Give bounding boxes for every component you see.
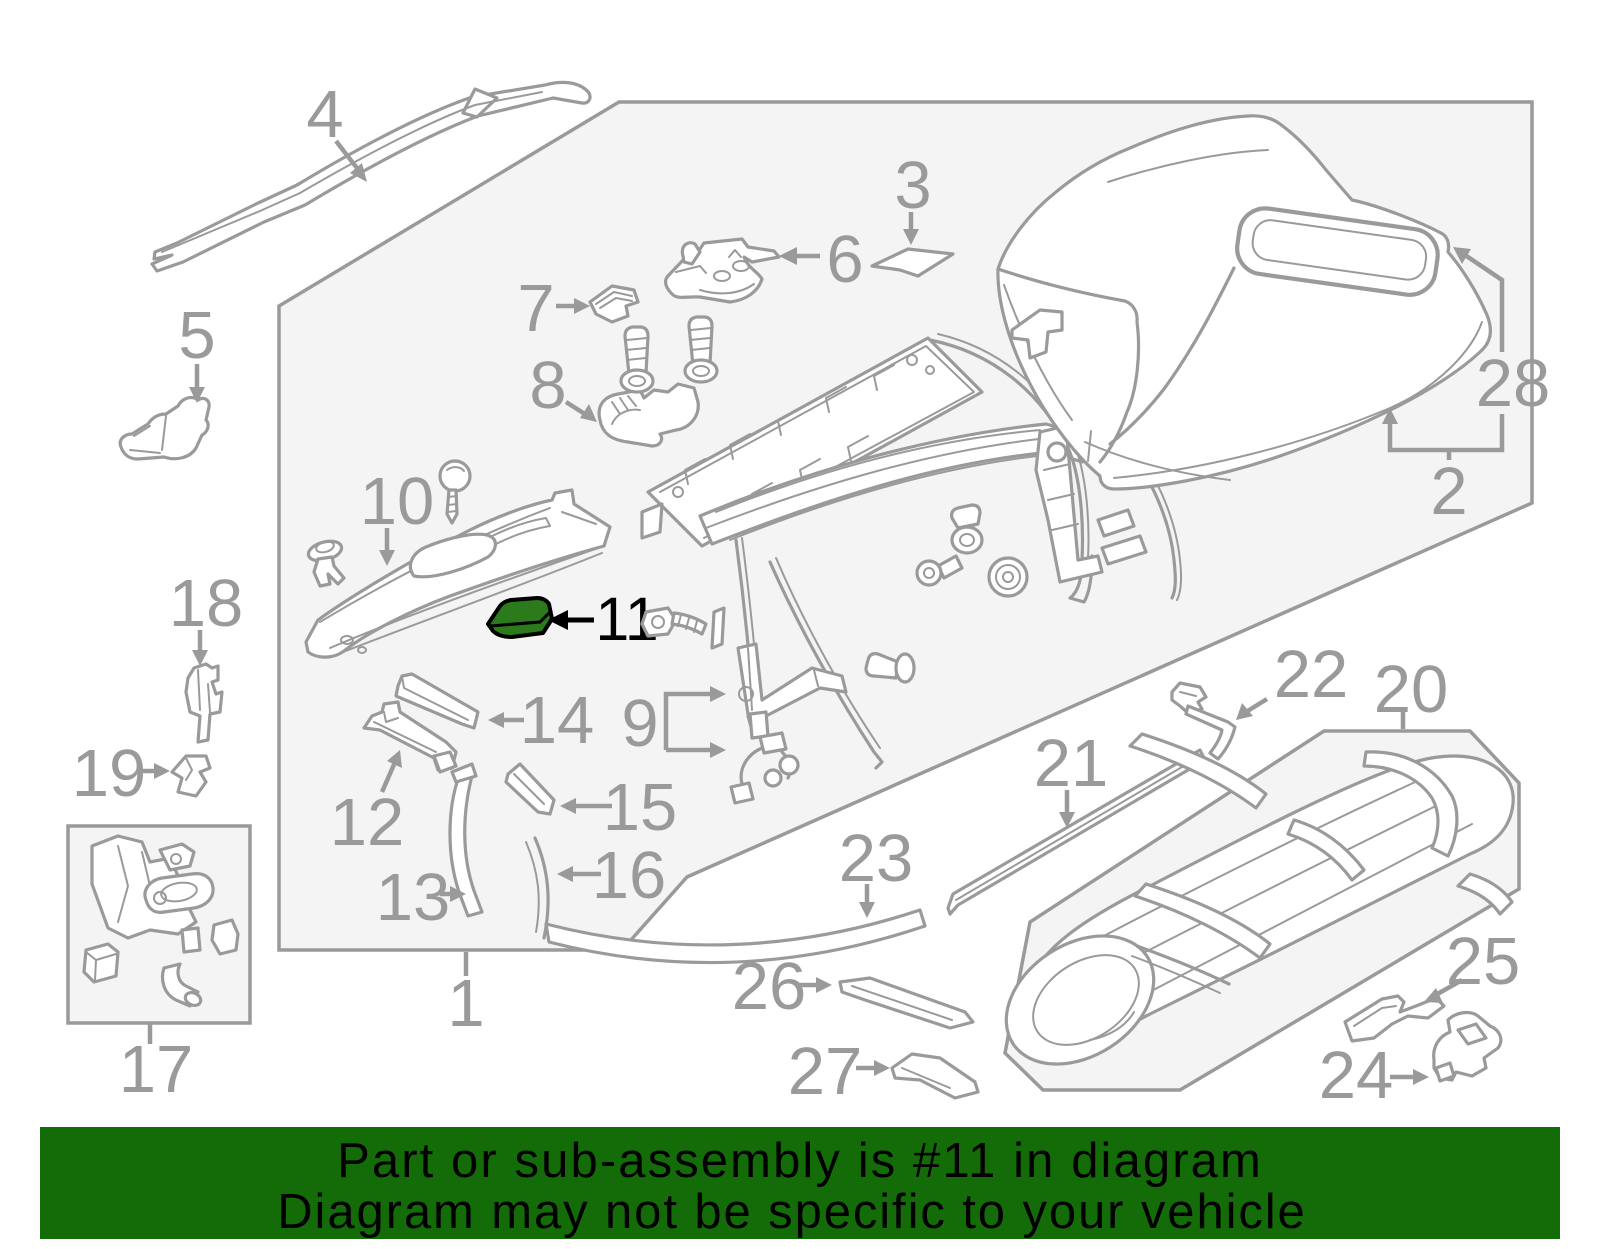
svg-text:13: 13 — [376, 860, 451, 935]
svg-text:20: 20 — [1374, 652, 1449, 727]
svg-text:21: 21 — [1034, 726, 1109, 801]
svg-text:18: 18 — [169, 566, 244, 641]
svg-text:19: 19 — [72, 736, 147, 811]
svg-text:23: 23 — [839, 821, 914, 896]
svg-text:2: 2 — [1430, 454, 1467, 529]
svg-text:14: 14 — [520, 683, 595, 758]
svg-text:16: 16 — [592, 838, 667, 913]
svg-text:Diagram may not be specific to: Diagram may not be specific to your vehi… — [277, 1185, 1306, 1239]
svg-text:26: 26 — [732, 949, 807, 1024]
svg-text:8: 8 — [529, 348, 566, 423]
svg-text:5: 5 — [178, 298, 215, 373]
svg-text:3: 3 — [894, 148, 931, 223]
svg-text:9: 9 — [621, 686, 658, 761]
svg-text:24: 24 — [1319, 1038, 1394, 1113]
svg-text:27: 27 — [788, 1034, 863, 1109]
svg-text:10: 10 — [360, 464, 435, 539]
svg-text:17: 17 — [119, 1032, 194, 1107]
svg-text:Part or sub-assembly is #11 in: Part or sub-assembly is #11 in diagram — [337, 1134, 1263, 1188]
svg-text:22: 22 — [1274, 637, 1349, 712]
svg-text:6: 6 — [826, 222, 863, 297]
svg-text:25: 25 — [1446, 924, 1521, 999]
svg-text:15: 15 — [603, 770, 678, 845]
svg-text:7: 7 — [517, 271, 554, 346]
svg-text:28: 28 — [1476, 346, 1551, 421]
svg-text:1: 1 — [447, 966, 484, 1041]
svg-text:12: 12 — [330, 785, 405, 860]
